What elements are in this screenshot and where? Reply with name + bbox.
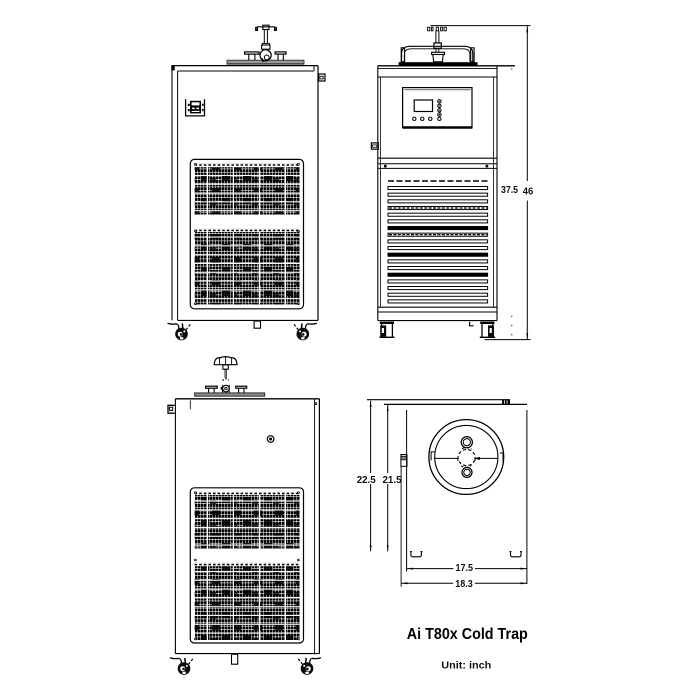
svg-text:18.3: 18.3 [455, 579, 473, 590]
svg-text:46: 46 [523, 187, 534, 198]
svg-text:17.5: 17.5 [455, 563, 473, 574]
svg-text:21.5: 21.5 [383, 475, 402, 486]
svg-text:Unit: inch: Unit: inch [441, 661, 491, 672]
svg-text:37.5: 37.5 [501, 185, 518, 196]
svg-text:22.5: 22.5 [357, 475, 376, 486]
svg-text:Ai T80x Cold Trap: Ai T80x Cold Trap [407, 626, 528, 643]
